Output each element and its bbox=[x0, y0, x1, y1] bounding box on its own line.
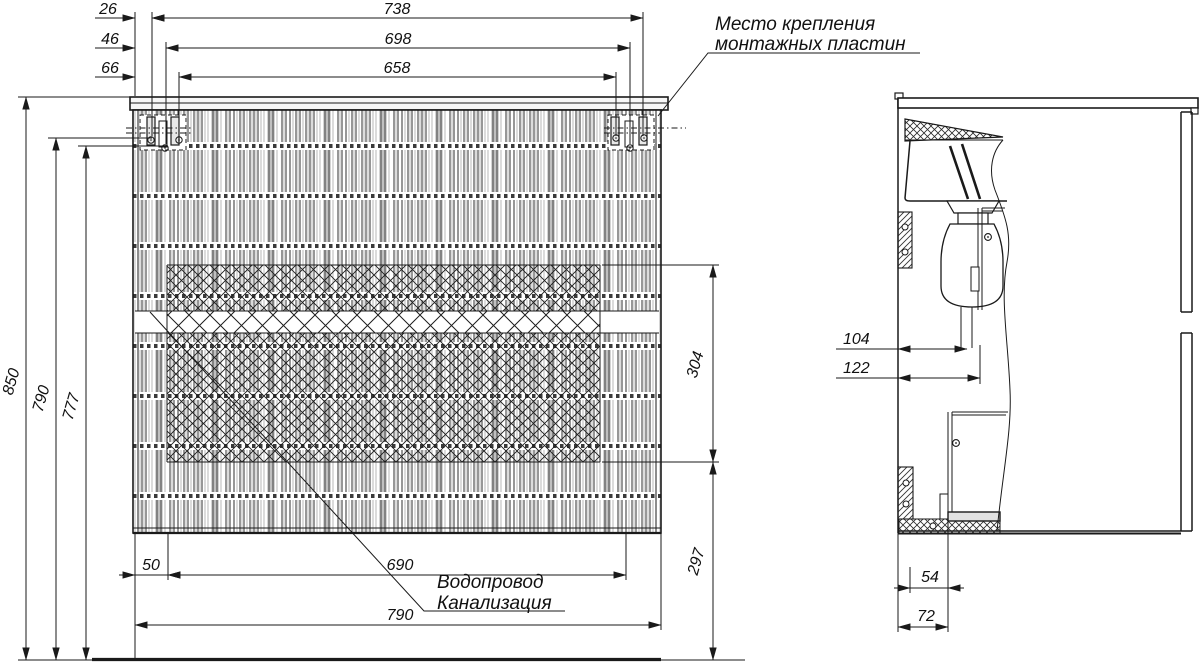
dim-label-72: 72 bbox=[917, 608, 935, 625]
drawing-canvas: 26 738 46 698 66 658 850 790 bbox=[0, 0, 1200, 667]
countertop-side bbox=[898, 98, 1198, 114]
sink-basin-section bbox=[905, 119, 1007, 201]
dim-label-304: 304 bbox=[684, 349, 708, 379]
lower-drawer-section bbox=[940, 412, 1008, 521]
dim-label-698: 698 bbox=[385, 31, 412, 48]
dim-66-658: 66 658 bbox=[95, 60, 616, 77]
dim-label-297: 297 bbox=[685, 546, 709, 578]
dim-label-738: 738 bbox=[384, 1, 411, 18]
countertop bbox=[130, 97, 668, 110]
dim-50-690: 50 690 bbox=[119, 533, 661, 660]
side-view bbox=[895, 93, 1198, 534]
dim-label-66: 66 bbox=[101, 60, 119, 77]
drawer-pattern-band bbox=[135, 265, 659, 462]
dim-label-46: 46 bbox=[101, 31, 119, 48]
callout-mounting-line2: монтажных пластин bbox=[715, 34, 906, 55]
dim-72: 72 bbox=[898, 608, 948, 627]
dim-label-122: 122 bbox=[843, 360, 870, 377]
front-panel-side bbox=[1181, 112, 1192, 531]
dim-label-50: 50 bbox=[142, 557, 160, 574]
dim-label-658: 658 bbox=[384, 60, 411, 77]
dim-label-777: 777 bbox=[60, 391, 84, 422]
dim-label-790-left: 790 bbox=[30, 383, 54, 413]
floor-line bbox=[18, 660, 745, 661]
dim-850: 850 bbox=[0, 97, 131, 660]
callout-plumbing-line1: Водопровод bbox=[437, 572, 543, 593]
callout-plumbing-line2: Канализация bbox=[437, 593, 552, 614]
dim-label-690: 690 bbox=[387, 557, 414, 574]
break-line bbox=[992, 140, 1011, 531]
dim-label-850: 850 bbox=[0, 366, 24, 396]
callout-mounting-line1: Место крепления bbox=[715, 14, 875, 35]
front-view bbox=[18, 97, 745, 660]
dim-label-104: 104 bbox=[843, 331, 870, 348]
wall-bracket-lower bbox=[898, 467, 913, 519]
dim-label-790-bottom: 790 bbox=[387, 607, 414, 624]
dim-label-26: 26 bbox=[98, 1, 117, 18]
dim-label-54: 54 bbox=[921, 569, 939, 586]
dim-122: 122 bbox=[836, 360, 980, 378]
dim-790-bottom: 790 bbox=[135, 607, 661, 625]
dim-26-738: 26 738 bbox=[95, 1, 643, 18]
technical-drawing: 26 738 46 698 66 658 850 790 bbox=[0, 0, 1200, 667]
dim-46-698: 46 698 bbox=[95, 31, 630, 48]
wall-bracket-upper bbox=[898, 212, 912, 268]
cabinet-bottom-side bbox=[898, 519, 1192, 534]
callout-mounting-plates: Место крепления монтажных пластин bbox=[658, 14, 920, 116]
